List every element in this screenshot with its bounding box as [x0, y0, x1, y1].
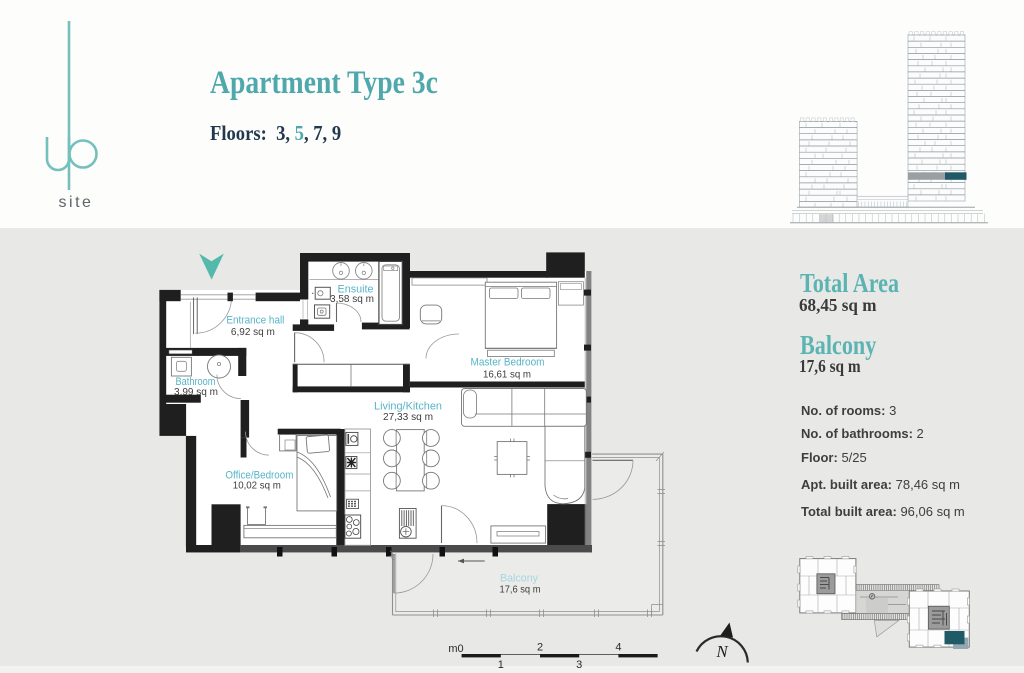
svg-text:3: 3 [576, 659, 582, 671]
svg-text:Living/Kitchen: Living/Kitchen [374, 401, 442, 413]
svg-text:Entrance hall: Entrance hall [226, 315, 284, 327]
svg-text:1: 1 [498, 659, 504, 671]
svg-text:Balcony: Balcony [500, 573, 538, 585]
svg-text:4: 4 [615, 642, 621, 654]
svg-text:N: N [715, 642, 729, 661]
svg-text:10,02 sq m: 10,02 sq m [233, 481, 281, 492]
svg-text:6,92 sq m: 6,92 sq m [231, 327, 275, 338]
svg-text:3,58 sq m: 3,58 sq m [330, 294, 374, 305]
svg-text:3,99 sq m: 3,99 sq m [174, 387, 218, 398]
svg-text:m0: m0 [448, 643, 463, 655]
svg-text:site: site [59, 194, 94, 211]
svg-text:2: 2 [537, 642, 543, 654]
svg-text:17,6 sq m: 17,6 sq m [500, 585, 541, 596]
svg-text:Master Bedroom: Master Bedroom [471, 357, 545, 369]
svg-text:16,61 sq m: 16,61 sq m [483, 370, 531, 381]
svg-text:27,33 sq m: 27,33 sq m [383, 412, 433, 423]
